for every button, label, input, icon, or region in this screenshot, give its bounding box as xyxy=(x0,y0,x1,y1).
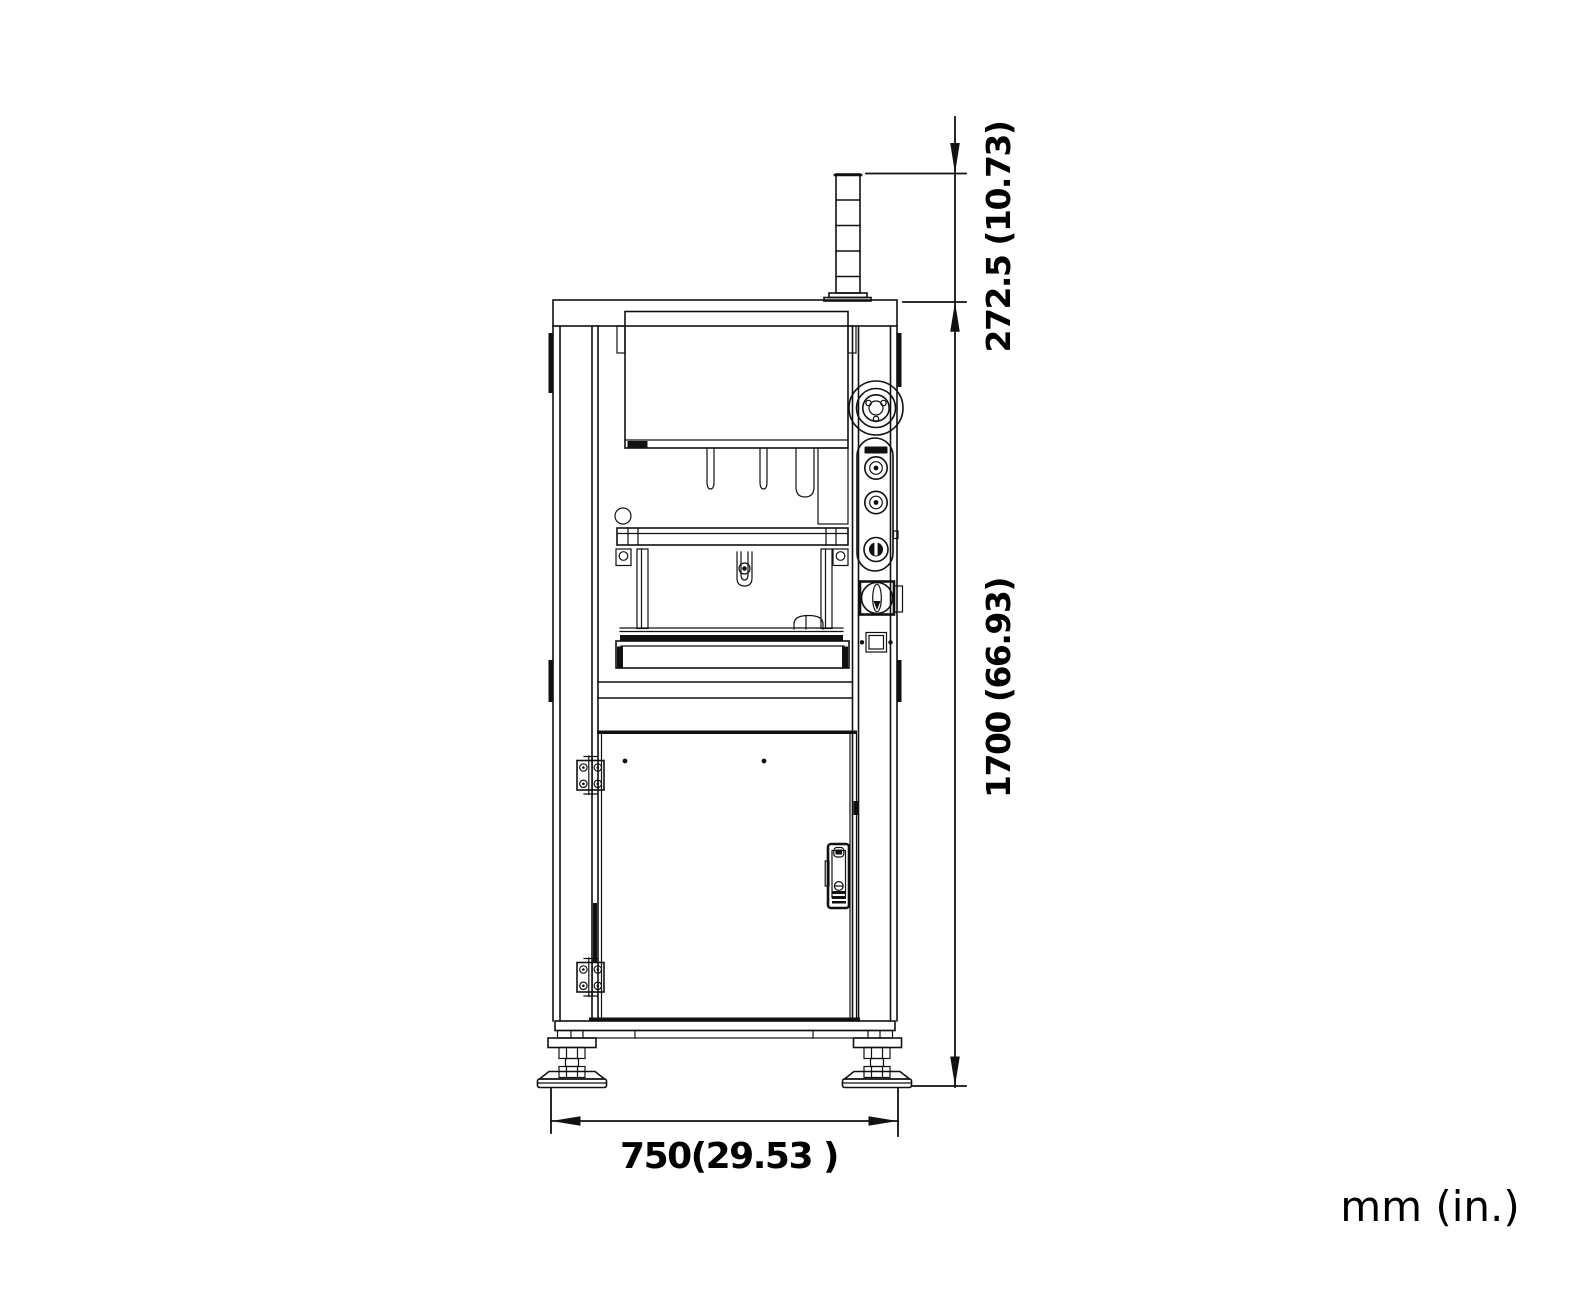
guide-rod xyxy=(707,448,714,489)
center-tool-pendant xyxy=(737,552,752,586)
frame-hinge-tab xyxy=(897,333,902,387)
emergency-stop-button xyxy=(849,381,903,435)
overall-height-label: 1700 (66.93) xyxy=(979,578,1018,798)
door-handle xyxy=(825,844,849,908)
door-seam xyxy=(593,903,597,963)
technical-drawing: 272.5 (10.73) 1700 (66.93) 750(29.53 ) m… xyxy=(0,0,1576,1300)
drawing-canvas: 272.5 (10.73) 1700 (66.93) 750(29.53 ) m… xyxy=(0,0,1576,1300)
pilot-hole xyxy=(615,508,631,524)
leveling-foot-left xyxy=(538,1048,607,1088)
arrow-right-icon xyxy=(869,1116,898,1126)
guide-rod xyxy=(796,448,814,497)
clamp-arch xyxy=(794,616,823,630)
hinge-bottom xyxy=(577,958,604,997)
frame-hinge-tab xyxy=(549,660,554,702)
dimension-annotations: 272.5 (10.73) 1700 (66.93) 750(29.53 ) m… xyxy=(551,117,1520,1231)
leveling-foot-right xyxy=(843,1048,912,1088)
hinge-top xyxy=(577,756,604,795)
machine-base xyxy=(538,1021,912,1088)
press-post xyxy=(821,549,832,629)
dimension-overall-height: 1700 (66.93) xyxy=(913,578,1018,1086)
arrow-down-icon xyxy=(950,1057,960,1087)
press-mechanism xyxy=(615,448,849,668)
machine-front-view xyxy=(538,174,912,1088)
button-cluster xyxy=(857,438,893,571)
dimension-overall-width: 750(29.53 ) xyxy=(551,1089,898,1177)
side-bracket xyxy=(818,448,848,524)
frame-hinge-tab xyxy=(549,333,554,393)
work-tray xyxy=(616,641,849,668)
units-note: mm (in.) xyxy=(1340,1182,1520,1231)
arrow-left-icon xyxy=(551,1116,580,1126)
cluster-label xyxy=(865,447,888,454)
guide-rod xyxy=(760,448,767,489)
frame-hinge-tab xyxy=(897,660,902,702)
signal-tower xyxy=(824,174,871,301)
overall-width-label: 750(29.53 ) xyxy=(620,1136,838,1177)
arrow-up-icon xyxy=(950,302,960,332)
model-badge xyxy=(628,441,648,448)
upper-height-label: 272.5 (10.73) xyxy=(979,122,1018,353)
upper-cover-panel xyxy=(617,312,856,449)
door-screw xyxy=(623,759,628,764)
door-latch xyxy=(854,801,859,815)
control-panel xyxy=(849,381,903,652)
door-screw xyxy=(762,759,767,764)
power-disconnect-switch xyxy=(860,582,903,615)
cabinet-door xyxy=(577,731,860,1022)
platen xyxy=(620,628,843,641)
arrow-down-icon xyxy=(950,143,960,173)
power-connector xyxy=(860,633,893,653)
press-post xyxy=(637,549,648,629)
